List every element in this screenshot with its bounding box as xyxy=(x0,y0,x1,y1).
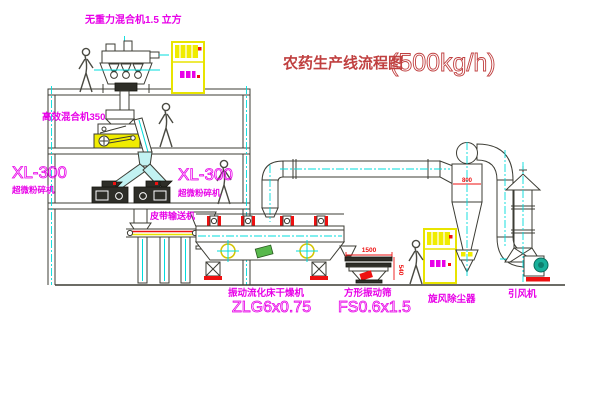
person-figure-second-floor xyxy=(159,103,173,147)
sieve-length-dimension: 1500 xyxy=(362,247,377,254)
third-floor-beam xyxy=(48,203,250,209)
dryer-discharge-chute xyxy=(340,246,356,256)
label-mill-left-model: XL-300 xyxy=(12,163,67,182)
label-mill-right-model: XL-300 xyxy=(178,165,233,184)
dryer-spring-foot-left xyxy=(204,262,222,280)
process-flow-diagram: 1500 540 xyxy=(0,0,600,403)
label-dryer-model: ZLG6x0.75 xyxy=(232,299,311,316)
induced-draft-fan xyxy=(524,256,550,282)
label-dryer-name: 振动流化床干燥机 xyxy=(228,287,305,299)
label-cyclone: 旋风除尘器 xyxy=(427,293,476,305)
control-cabinet-top xyxy=(172,42,204,93)
diagram-capacity: (500kg/h) xyxy=(390,49,496,77)
label-sieve-name: 方形振动筛 xyxy=(344,287,392,299)
sieve-height-dimension: 540 xyxy=(397,265,404,276)
label-sieve-model: FS0.6x1.5 xyxy=(338,299,411,316)
label-mill-left-name: 超微粉碎机 xyxy=(11,185,55,195)
label-belt-conveyor: 皮带输送机 xyxy=(149,210,195,221)
fluid-bed-dryer xyxy=(196,214,356,280)
vibrating-sieve: 1500 540 xyxy=(345,247,404,283)
cabinet-top-nameplate xyxy=(180,71,196,78)
dryer-spring-foot-right xyxy=(310,262,328,280)
diagram-title: 农药生产线流程图 xyxy=(282,54,403,72)
control-cabinet-right xyxy=(424,229,456,283)
cad-drawing-canvas: 1500 540 xyxy=(0,0,600,403)
label-mill-right-name: 超微粉碎机 xyxy=(177,188,221,198)
label-gravity-mixer: 无重力混合机1.5 立方 xyxy=(84,13,182,26)
label-fan: 引风机 xyxy=(508,288,537,300)
label-high-efficiency-mixer: 高效混合机350 xyxy=(42,111,105,123)
person-figure-ground xyxy=(409,240,423,284)
exhaust-duct xyxy=(262,159,453,222)
cabinet-right-nameplate xyxy=(430,260,446,267)
person-figure-roof xyxy=(79,48,93,92)
